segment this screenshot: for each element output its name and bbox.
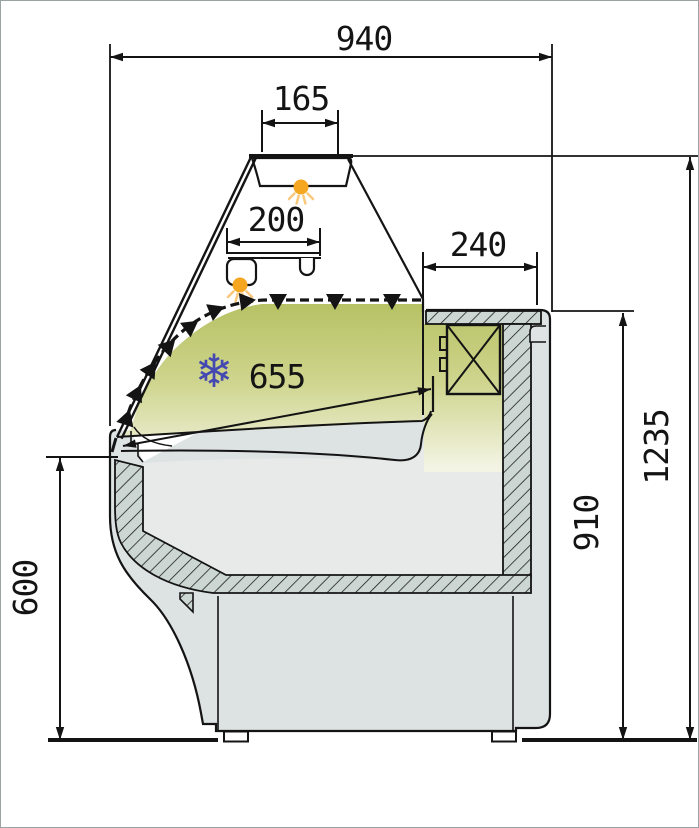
dim-front-height-label: 600 xyxy=(6,560,45,617)
cross-section-drawing: ❄ 940 165 200 xyxy=(0,0,699,828)
dim-rear-counter-label: 240 xyxy=(450,225,507,264)
dim-overall-depth-label: 940 xyxy=(336,19,393,58)
rear-panel xyxy=(348,159,423,312)
dim-rear-height: 910 xyxy=(552,311,634,740)
dim-rear-counter: 240 xyxy=(423,225,537,305)
dim-canopy: 165 xyxy=(262,79,338,156)
dim-shelf: 200 xyxy=(227,200,320,256)
dim-front-height: 600 xyxy=(6,457,118,740)
foot-left xyxy=(224,732,248,742)
dim-canopy-label: 165 xyxy=(273,79,330,118)
corner-step xyxy=(530,326,546,342)
dim-display-deck-label: 655 xyxy=(249,357,306,396)
foot-right xyxy=(492,732,516,742)
dim-overall-height-label: 1235 xyxy=(637,409,676,484)
dim-overall-height: 1235 xyxy=(637,157,694,740)
counter-section: ❄ xyxy=(48,156,698,742)
snowflake-icon: ❄ xyxy=(195,344,234,398)
drawing-canvas: ❄ 940 165 200 xyxy=(0,0,699,828)
dim-shelf-label: 200 xyxy=(248,200,305,239)
dim-rear-height-label: 910 xyxy=(567,495,606,552)
